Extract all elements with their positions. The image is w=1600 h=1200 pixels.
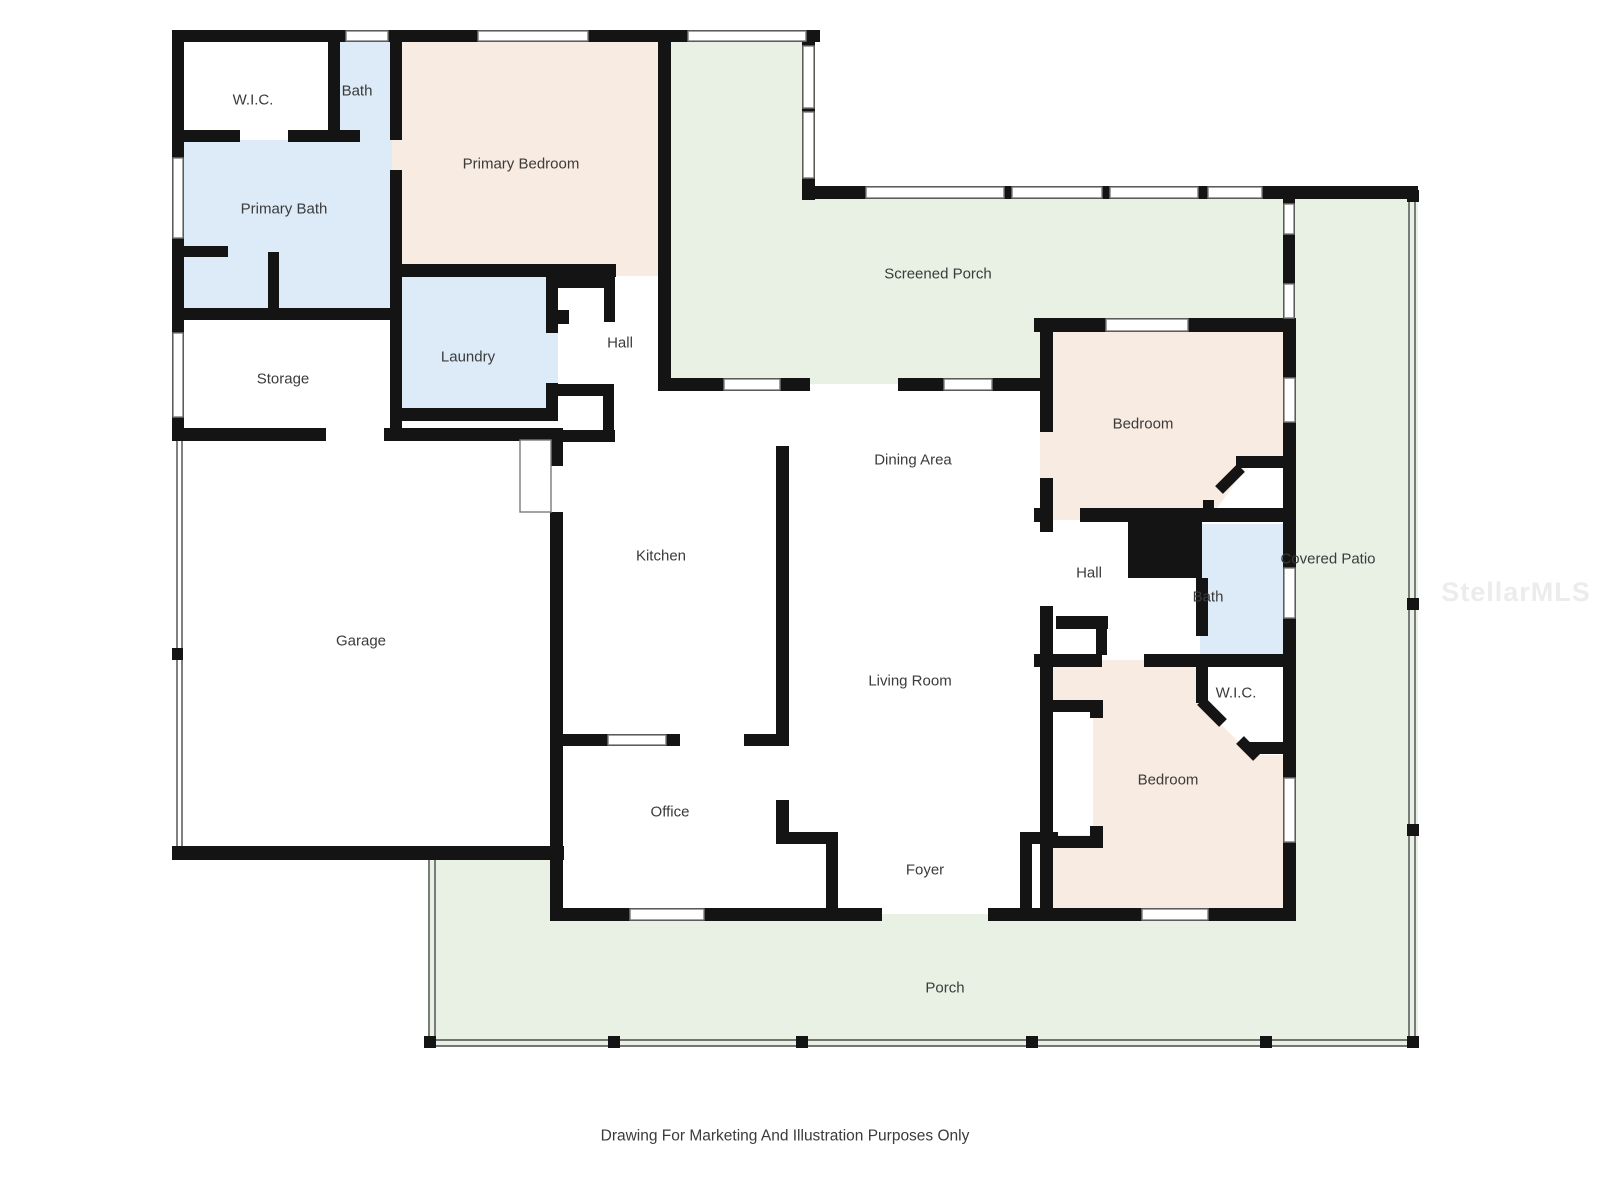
label-laundry: Laundry: [441, 349, 496, 366]
floor-plan-svg: W.I.C. Bath Primary Bedroom Primary Bath…: [0, 0, 1600, 1200]
label-wic-1: W.I.C.: [233, 92, 274, 109]
room-bedroom2-closet: [1053, 705, 1093, 835]
label-storage: Storage: [257, 371, 310, 388]
floor-plan-page: W.I.C. Bath Primary Bedroom Primary Bath…: [0, 0, 1600, 1200]
label-porch: Porch: [925, 980, 964, 997]
label-covered-patio: Covered Patio: [1280, 551, 1375, 568]
label-primary-bedroom: Primary Bedroom: [463, 156, 580, 173]
label-bedroom-1: Bedroom: [1113, 416, 1174, 433]
label-living-room: Living Room: [868, 673, 951, 690]
label-bath-1: Bath: [342, 83, 373, 100]
label-garage: Garage: [336, 633, 386, 650]
room-laundry: [390, 270, 558, 420]
label-foyer: Foyer: [906, 862, 944, 879]
label-hall-2: Hall: [1076, 565, 1102, 582]
label-bath-2: Bath: [1193, 589, 1224, 606]
label-hall-1: Hall: [607, 335, 633, 352]
label-primary-bath: Primary Bath: [241, 201, 328, 218]
room-primary-bath: [178, 140, 392, 320]
label-screened-porch: Screened Porch: [884, 266, 992, 283]
label-bedroom-2: Bedroom: [1138, 772, 1199, 789]
label-dining-area: Dining Area: [874, 452, 952, 469]
footer-disclaimer: Drawing For Marketing And Illustration P…: [601, 1128, 970, 1145]
stellar-mls-watermark: StellarMLS: [1441, 577, 1591, 607]
label-office: Office: [651, 804, 690, 821]
label-kitchen: Kitchen: [636, 548, 686, 565]
label-wic-2: W.I.C.: [1216, 685, 1257, 702]
